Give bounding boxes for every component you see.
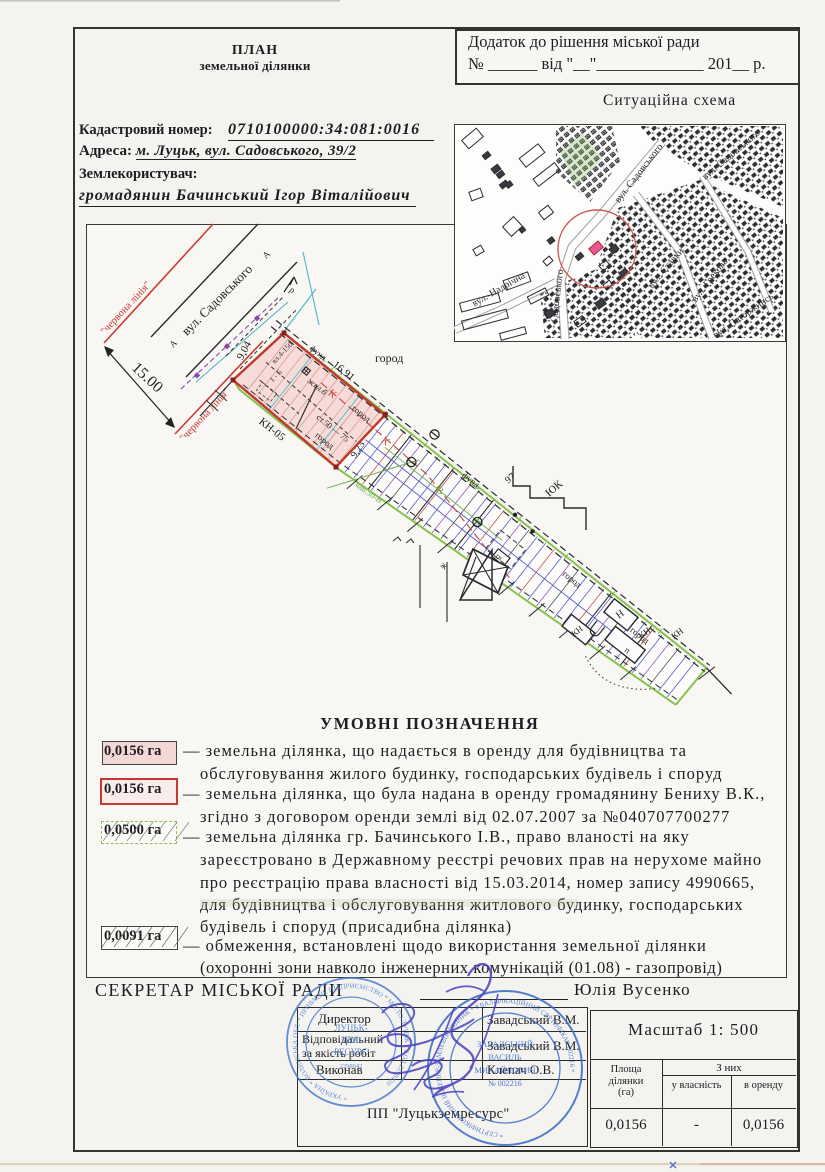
svg-text:р: р xyxy=(288,285,298,296)
svg-text:"червона лінія": "червона лінія" xyxy=(99,280,154,337)
svg-text:А: А xyxy=(260,248,272,260)
svg-text:"червона лінія": "червона лінія" xyxy=(178,387,233,444)
svg-text:ВАСИЛЬ: ВАСИЛЬ xyxy=(488,1052,521,1062)
svg-text:9,04: 9,04 xyxy=(235,339,255,362)
svg-text:2298642: 2298642 xyxy=(340,1063,363,1070)
svg-text:КН: КН xyxy=(669,625,685,641)
svg-text:ЗАВАДСЬКИЙ: ЗАВАДСЬКИЙ xyxy=(477,1039,533,1049)
svg-text:город: город xyxy=(375,351,403,365)
svg-text:ЮК: ЮК xyxy=(543,478,566,500)
svg-text:вул. Садовського: вул. Садовського xyxy=(178,261,255,338)
svg-text:МИХАЙЛОВИЧ: МИХАЙЛОВИЧ xyxy=(474,1065,536,1075)
svg-text:А: А xyxy=(167,337,179,349)
svg-text:ЗЕМ-: ЗЕМ- xyxy=(340,1035,361,1045)
svg-text:№ 002216: № 002216 xyxy=(488,1079,522,1088)
svg-text:ж: ж xyxy=(438,559,450,572)
svg-text:15.00: 15.00 xyxy=(128,359,166,396)
svg-text:97: 97 xyxy=(503,471,518,486)
svg-text:РЕСУРС: РЕСУРС xyxy=(334,1047,368,1057)
svg-text:ЛУЦЬК-: ЛУЦЬК- xyxy=(334,1023,367,1033)
